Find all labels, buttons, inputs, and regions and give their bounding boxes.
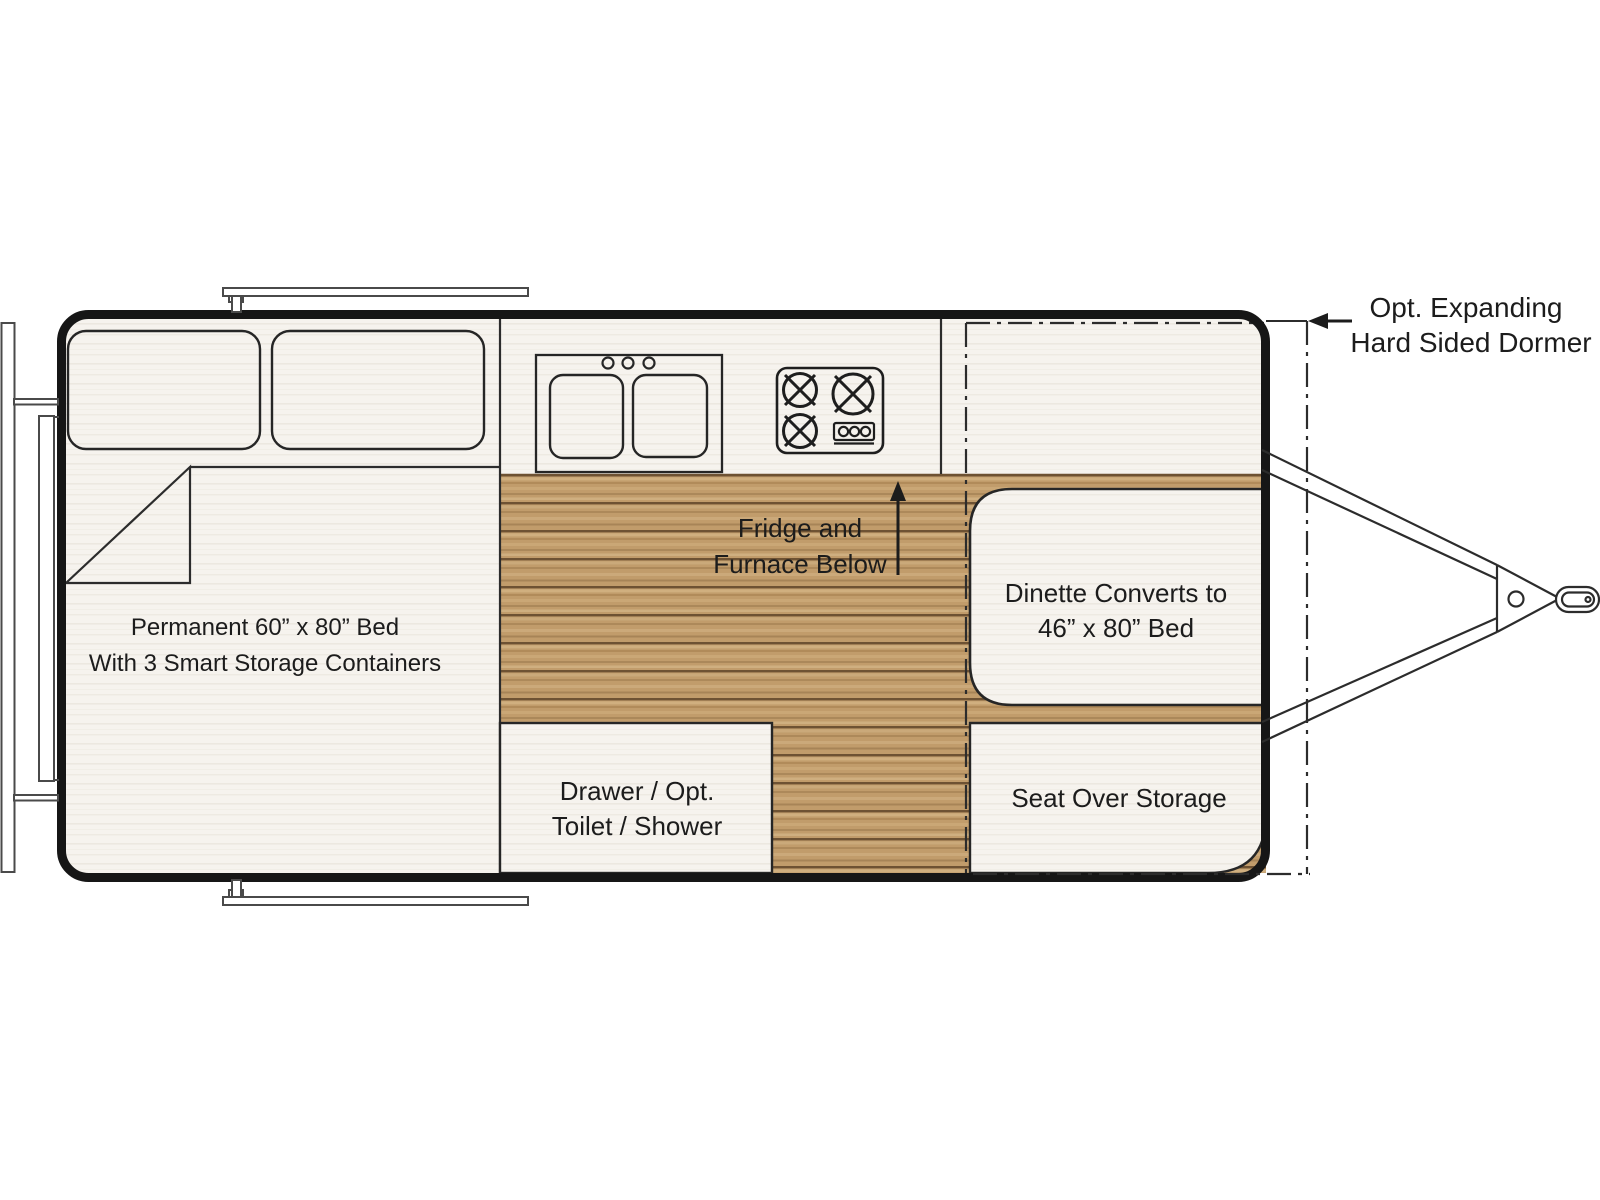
dormer-label-line1: Opt. Expanding [1369, 292, 1562, 323]
dinette-label-line2: 46” x 80” Bed [1038, 613, 1194, 643]
storage-container-right [272, 331, 484, 449]
fridge-label-line1: Fridge and [738, 513, 862, 543]
seat-label: Seat Over Storage [1011, 783, 1226, 813]
floor-plan-drawing: Permanent 60” x 80” Bed With 3 Smart Sto… [0, 0, 1600, 1200]
fridge-label-line2: Furnace Below [713, 549, 887, 579]
floor-plan-page: Permanent 60” x 80” Bed With 3 Smart Sto… [0, 0, 1600, 1200]
bumper-arm-top [14, 399, 58, 405]
awning-rail-bottom-bracket-stem [232, 880, 241, 897]
drawer-label-line1: Drawer / Opt. [560, 776, 715, 806]
bumper-inner-bar [39, 416, 54, 781]
dinette-label-line1: Dinette Converts to [1005, 578, 1228, 608]
sink-counter [536, 355, 722, 472]
dormer-label-line2: Hard Sided Dormer [1350, 327, 1591, 358]
storage-container-left [68, 331, 260, 449]
drawer-label-line2: Toilet / Shower [552, 811, 723, 841]
bumper-outer-bar [2, 323, 15, 872]
awning-rail-top-bracket-stem [232, 296, 241, 312]
kitchen-sink [536, 355, 722, 472]
stove-cooktop [777, 368, 883, 453]
hitch-coupler [1556, 587, 1599, 612]
bumper-arm-bottom [14, 795, 58, 801]
bed-label-line1: Permanent 60” x 80” Bed [131, 614, 399, 641]
bed-label-line2: With 3 Smart Storage Containers [89, 650, 441, 677]
